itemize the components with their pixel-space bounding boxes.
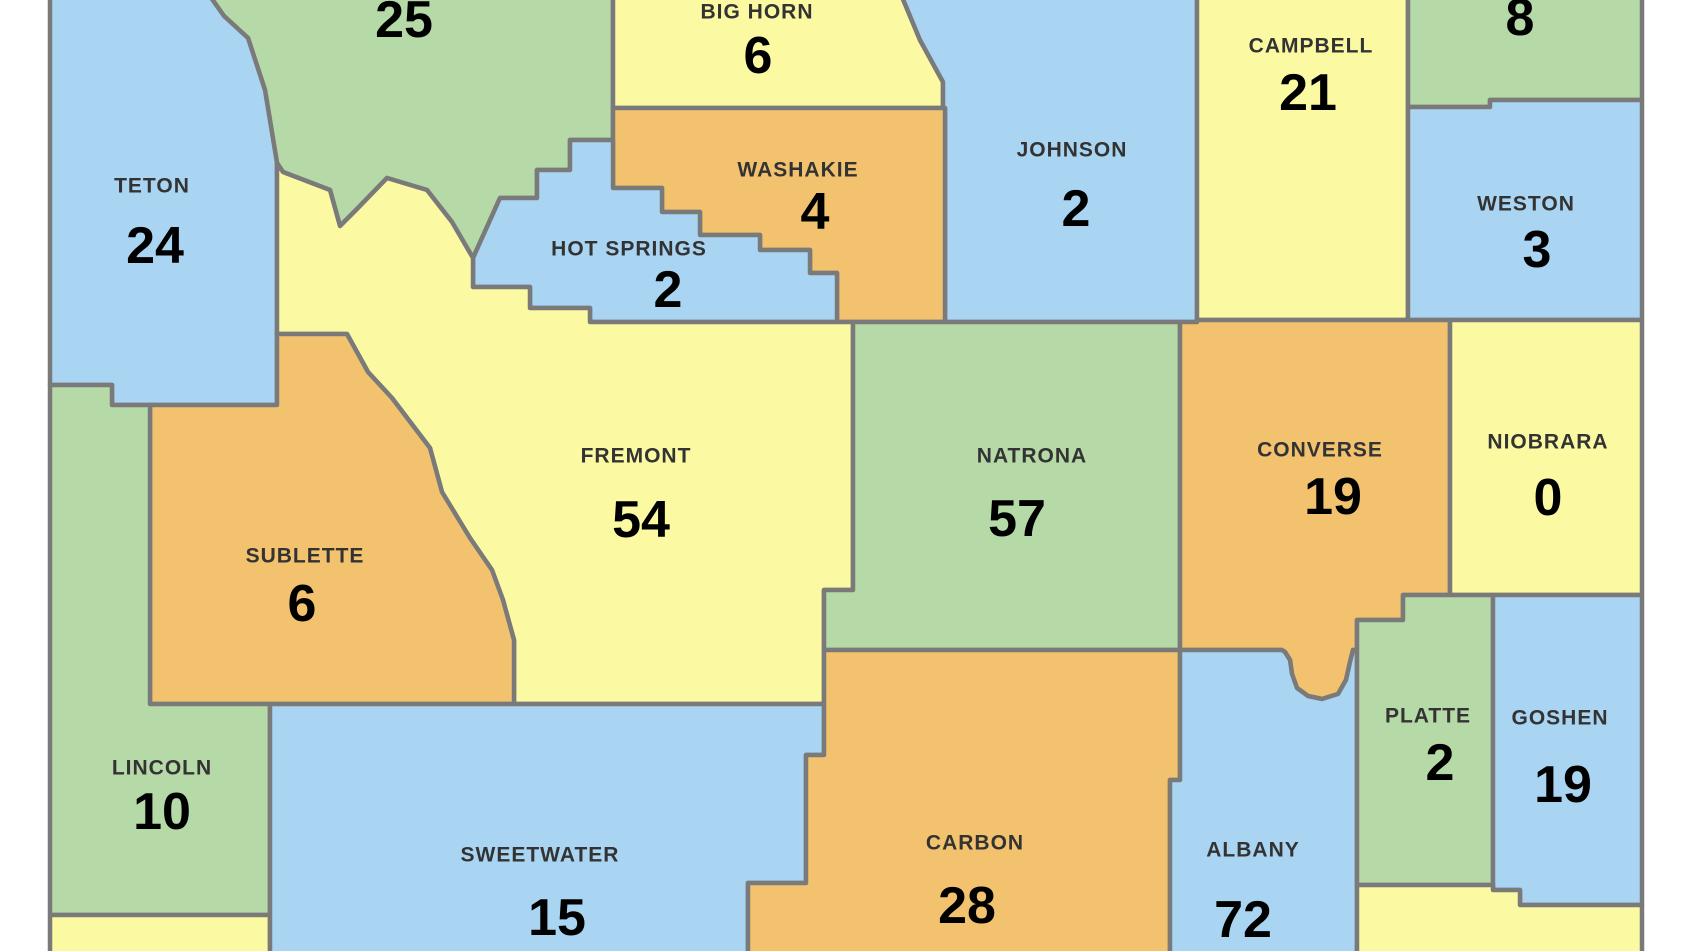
county-albany-value: 72 [1214, 891, 1272, 949]
county-teton-value: 24 [126, 217, 184, 275]
county-campbell-label: CAMPBELL [1249, 35, 1374, 58]
county-albany-label: ALBANY [1206, 839, 1300, 862]
wyoming-county-map: 25 BIG HORN 6 JOHNSON 2 CAMPBELL 21 8 WE… [0, 0, 1690, 951]
county-lincoln-value: 10 [133, 783, 191, 841]
county-fremont-label: FREMONT [581, 445, 692, 468]
county-campbell: CAMPBELL 21 [1197, 0, 1408, 320]
county-park-value: 25 [375, 0, 433, 49]
county-carbon-label: CARBON [926, 832, 1024, 855]
county-converse-value: 19 [1304, 468, 1362, 526]
county-teton: TETON 24 [50, 0, 277, 405]
county-sublette-label: SUBLETTE [246, 545, 365, 568]
county-johnson-label: JOHNSON [1017, 139, 1128, 162]
county-washakie-value: 4 [801, 183, 830, 241]
county-campbell-value: 21 [1279, 64, 1337, 122]
county-weston-label: WESTON [1477, 193, 1575, 216]
county-teton-label: TETON [114, 175, 190, 198]
county-lincoln-label: LINCOLN [112, 757, 212, 780]
county-bighorn-label: BIG HORN [701, 1, 814, 24]
county-platte-label: PLATTE [1385, 705, 1471, 728]
county-platte-value: 2 [1426, 734, 1455, 792]
county-natrona-shape [824, 322, 1180, 650]
county-uinta [50, 915, 270, 951]
county-sweetwater: SWEETWATER 15 [270, 704, 824, 951]
county-converse-label: CONVERSE [1257, 439, 1383, 462]
county-sweetwater-label: SWEETWATER [461, 844, 620, 867]
county-carbon-value: 28 [938, 877, 996, 935]
county-johnson-value: 2 [1062, 180, 1091, 238]
county-uinta-shape [50, 915, 270, 951]
county-niobrara-label: NIOBRARA [1487, 431, 1608, 454]
county-goshen-value: 19 [1534, 756, 1592, 814]
county-map-canvas: 25 BIG HORN 6 JOHNSON 2 CAMPBELL 21 8 WE… [0, 0, 1690, 951]
county-bighorn: BIG HORN 6 [613, 0, 943, 108]
county-bighorn-value: 6 [744, 27, 773, 85]
county-niobrara-value: 0 [1534, 469, 1563, 527]
county-goshen: GOSHEN 19 [1493, 595, 1642, 905]
county-natrona-value: 57 [988, 490, 1046, 548]
county-sublette-value: 6 [288, 575, 317, 633]
county-niobrara: NIOBRARA 0 [1450, 320, 1642, 595]
county-crook: 8 [1408, 0, 1642, 107]
county-weston-value: 3 [1523, 221, 1552, 279]
county-hotsprings-value: 2 [654, 261, 683, 319]
county-natrona-label: NATRONA [977, 445, 1087, 468]
county-weston: WESTON 3 [1408, 100, 1642, 320]
county-goshen-label: GOSHEN [1511, 707, 1608, 730]
county-washakie-label: WASHAKIE [737, 159, 858, 182]
county-sweetwater-value: 15 [528, 889, 586, 947]
county-platte: PLATTE 2 [1357, 595, 1493, 885]
county-fremont-value: 54 [612, 491, 670, 549]
county-albany: ALBANY 72 [1170, 650, 1357, 951]
county-crook-value: 8 [1506, 0, 1535, 47]
county-teton-shape [50, 0, 277, 405]
county-natrona: NATRONA 57 [824, 322, 1180, 650]
county-goshen-shape [1493, 595, 1642, 905]
county-hotsprings-label: HOT SPRINGS [551, 238, 707, 261]
county-niobrara-shape [1450, 320, 1642, 595]
